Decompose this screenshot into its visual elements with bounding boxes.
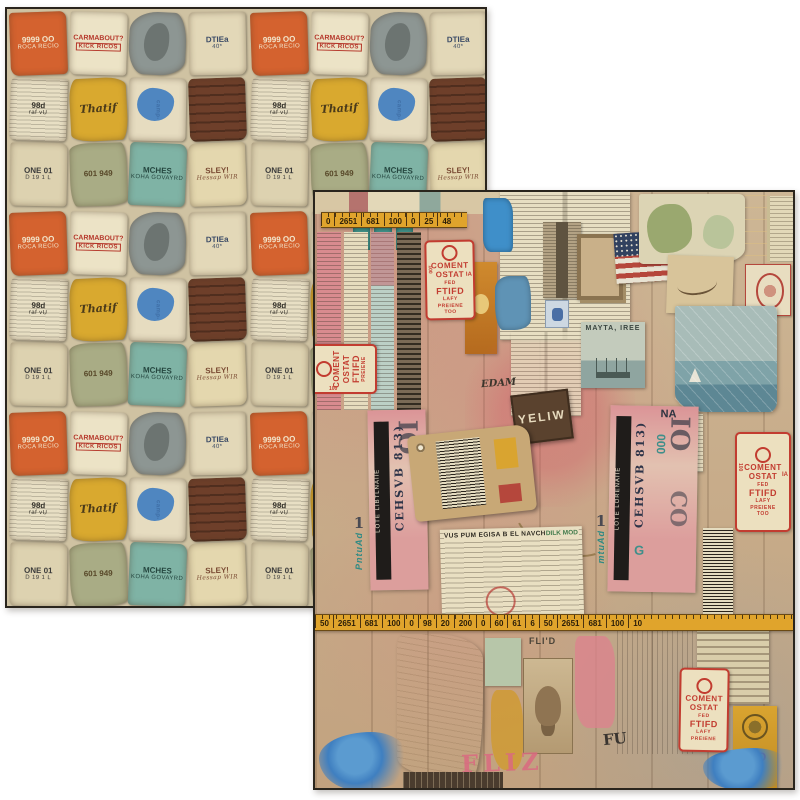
scrap-text: Thatif bbox=[320, 102, 358, 116]
scrap-text: Thatif bbox=[79, 502, 117, 516]
scrap-subtext: KOHA GOVAYRD bbox=[131, 575, 184, 584]
small-certificate-stamp bbox=[545, 300, 569, 328]
scrapbook-paper-product-photo: 9999 OOROCA RECIOCARMABOUT?KICK RICOSDTI… bbox=[0, 0, 800, 800]
top-edge-scraps bbox=[315, 192, 505, 214]
scrap-text: 98d bbox=[272, 301, 286, 310]
stamp-line: COMENT bbox=[744, 464, 782, 472]
tape-number: 0 bbox=[406, 213, 419, 226]
scrap-subtext: 40* bbox=[453, 44, 463, 51]
ticket-band-text: LOTE LORENAIIE bbox=[614, 417, 632, 581]
paper-scrap: 9999 OOROCA RECIO bbox=[9, 211, 68, 276]
scrap-subtext: KOHA GOVAYRD bbox=[131, 375, 184, 384]
stamp-side-number: 100 bbox=[737, 463, 743, 471]
paper-scrap: 9999 OOROCA RECIO bbox=[250, 11, 309, 76]
paper-scrap: SLEY!Hessap WIR bbox=[187, 542, 246, 607]
scrap-text: 98d bbox=[272, 101, 286, 110]
paper-sheet-front: MAYTA, IREE EDAM YELIW LOTE LIBTLNAIIE C… bbox=[313, 190, 795, 790]
tape-number: 48 bbox=[437, 213, 455, 226]
coment-ostat-stamp: 100 IA COMENT OSTAT FED FTIFD LAFY PREIE… bbox=[424, 240, 475, 321]
receipt-cluster: VUS PUM EGISA B EL NAVCHE DILK MOD bbox=[440, 526, 584, 624]
tape-number: 681 bbox=[360, 615, 382, 628]
ticket-letter: G bbox=[634, 543, 644, 558]
tape-number: 681 bbox=[361, 213, 383, 226]
ticket-band-text: LOTE LIBTLNAIIE bbox=[374, 421, 392, 580]
scrap-subtext: KOHA GOVAYRD bbox=[131, 175, 184, 184]
scrap-subtext: KICK RICOS bbox=[75, 42, 121, 52]
scrap-text: 98d bbox=[31, 101, 45, 110]
vintage-portrait-photo bbox=[523, 658, 573, 754]
scrap-subtext: KICK RICOS bbox=[75, 242, 121, 252]
stamp-line: OSTAT bbox=[343, 355, 351, 383]
portrait-face bbox=[535, 686, 561, 726]
torn-blue-paper bbox=[495, 276, 531, 330]
measuring-tape-bottom: 5026516811000982020006061650265168110010 bbox=[315, 614, 794, 631]
paper-scrap: Thatif bbox=[68, 476, 128, 542]
scrap-text: 98d bbox=[31, 501, 45, 510]
ticket-number: 1 bbox=[354, 514, 364, 532]
pink-ticket-right: NA 000 LOTE LORENAIIE CEHSVB 813) IO CO … bbox=[607, 405, 698, 593]
barcode-strip bbox=[436, 437, 487, 509]
paper-scrap: 98draf vU bbox=[9, 277, 68, 342]
scrap-subtext: camp- bbox=[154, 99, 161, 119]
tape-number: 10 bbox=[628, 615, 646, 628]
stamp-line: PREIENE bbox=[691, 737, 717, 743]
paper-scrap: 601 949 bbox=[69, 543, 127, 607]
stencil-word: FLI'D bbox=[529, 636, 556, 646]
scrap-text: 98d bbox=[272, 501, 286, 510]
tape-number: 0 bbox=[476, 615, 489, 628]
paper-scrap bbox=[127, 411, 187, 477]
scrap-subtext: D 19 1 L bbox=[25, 576, 51, 583]
scrap-subtext: D 19 1 L bbox=[266, 376, 292, 383]
tape-number: 25 bbox=[419, 213, 437, 226]
harbor-photo bbox=[675, 306, 777, 412]
tape-number: 2651 bbox=[557, 615, 584, 628]
tape-number: 6 bbox=[525, 615, 538, 628]
paper-scrap bbox=[187, 277, 246, 342]
scrap-subtext: ROCA RECIO bbox=[17, 44, 59, 52]
scrap-subtext: 40* bbox=[212, 44, 222, 51]
scrap-text: 601 949 bbox=[83, 570, 112, 580]
scrap-subtext: KICK RICOS bbox=[75, 442, 121, 452]
paper-scrap: 98draf vU bbox=[9, 477, 68, 542]
scrap-subtext: Hessap WIR bbox=[196, 575, 238, 583]
scrap-text: 601 949 bbox=[83, 370, 112, 380]
stamp-letters: IA bbox=[466, 272, 472, 278]
tape-number: 100 bbox=[384, 213, 406, 226]
paper-scrap: SLEY!Hessap WIR bbox=[187, 342, 246, 407]
paper-scrap: 98draf vU bbox=[250, 477, 309, 542]
ticket-serial: CEHSVB 813) bbox=[632, 421, 647, 529]
paper-scrap: camp- bbox=[128, 77, 186, 141]
measuring-tape-top: 0265168110002548 bbox=[321, 212, 467, 228]
scrap-subtext: raf vU bbox=[29, 310, 48, 317]
sailing-ship-illustration bbox=[596, 358, 630, 378]
paper-scrap: 98draf vU bbox=[9, 77, 68, 142]
yellow-patch bbox=[494, 437, 519, 469]
stamp-line: OSTAT bbox=[749, 473, 777, 481]
ticket-side-text: 1 PntuAd bbox=[349, 514, 369, 590]
scrap-subtext: D 19 1 L bbox=[266, 576, 292, 583]
pattern-tile: 9999 OOROCA RECIOCARMABOUT?KICK RICOSDTI… bbox=[248, 9, 487, 209]
paper-scrap bbox=[368, 11, 428, 77]
stamp-line: FTIFD bbox=[436, 287, 464, 297]
paper-scrap: DTIEa40* bbox=[188, 12, 246, 76]
paper-scrap: camp- bbox=[128, 277, 186, 341]
scrap-subtext: D 19 1 L bbox=[25, 176, 51, 183]
scrap-subtext: ROCA RECIO bbox=[17, 444, 59, 452]
scrap-subtext: ROCA RECIO bbox=[258, 244, 300, 252]
paper-scrap: 9999 OOROCA RECIO bbox=[9, 411, 68, 476]
tape-number: 2651 bbox=[334, 213, 361, 226]
scrap-subtext: camp- bbox=[154, 299, 161, 319]
pattern-tile: 9999 OOROCA RECIOCARMABOUT?KICK RICOSDTI… bbox=[7, 209, 248, 409]
paper-scrap: DTIEa40* bbox=[429, 12, 487, 76]
paper-scrap: Thatif bbox=[68, 276, 128, 342]
scrap-text: Thatif bbox=[79, 102, 117, 116]
tape-number: 0 bbox=[404, 615, 417, 628]
stamp-line: LAFY bbox=[755, 499, 770, 504]
coment-ostat-stamp: 100 COMENT OSTAT FTIFD PREIENE bbox=[313, 344, 377, 394]
tape-number: 681 bbox=[583, 615, 605, 628]
ticket-side-word: PntuAd bbox=[354, 532, 364, 570]
stamp-line: OSTAT bbox=[436, 271, 465, 280]
tape-number: 50 bbox=[539, 615, 557, 628]
tape-number: 2651 bbox=[333, 615, 360, 628]
scrap-text: DTIEa bbox=[205, 35, 228, 44]
scrap-subtext: raf vU bbox=[270, 110, 289, 117]
paper-scrap: ONE 01D 19 1 L bbox=[250, 143, 308, 207]
paper-scrap bbox=[428, 77, 487, 142]
scrap-subtext: raf vU bbox=[270, 310, 289, 317]
paper-scrap bbox=[187, 477, 246, 542]
paper-scrap: 601 949 bbox=[69, 143, 127, 207]
painted-letters: FU bbox=[602, 729, 627, 749]
paper-scrap: CARMABOUT?KICK RICOS bbox=[310, 11, 368, 75]
scrap-subtext: KICK RICOS bbox=[316, 42, 362, 52]
scrap-text: DTIEa bbox=[205, 235, 228, 244]
red-ring-stamp bbox=[485, 586, 516, 617]
blue-paint-splash bbox=[319, 732, 414, 790]
blue-paint-splash bbox=[703, 748, 795, 790]
paper-scrap: CARMABOUT?KICK RICOS bbox=[69, 411, 127, 475]
stamp-line: TOO bbox=[757, 512, 769, 517]
tape-number: 60 bbox=[490, 615, 508, 628]
pattern-tile: 9999 OOROCA RECIOCARMABOUT?KICK RICOSDTI… bbox=[7, 409, 248, 608]
stamp-line: FTIFD bbox=[352, 355, 361, 383]
dark-ticket-band bbox=[403, 772, 503, 790]
tape-number: 20 bbox=[436, 615, 454, 628]
paper-scrap: 98draf vU bbox=[250, 277, 309, 342]
green-note-scrap bbox=[485, 638, 521, 686]
stamp-line: COMENT bbox=[333, 350, 341, 388]
stamp-line: OSTAT bbox=[690, 704, 719, 713]
paper-scrap: 98draf vU bbox=[250, 77, 309, 142]
scrap-subtext: D 19 1 L bbox=[25, 376, 51, 383]
stamp-letters: IA bbox=[782, 472, 788, 478]
paper-scrap: MCHESKOHA GOVAYRD bbox=[128, 542, 187, 607]
paper-scrap: MCHESKOHA GOVAYRD bbox=[128, 142, 187, 207]
paper-scrap: Thatif bbox=[309, 76, 369, 142]
ship-card-caption: MAYTA, IREE bbox=[586, 325, 641, 332]
pattern-tile: 9999 OOROCA RECIOCARMABOUT?KICK RICOSDTI… bbox=[7, 9, 248, 209]
clock-tower-engraving bbox=[543, 222, 581, 298]
paper-scrap: ONE 01D 19 1 L bbox=[9, 143, 67, 207]
tape-number: 98 bbox=[418, 615, 436, 628]
coment-ostat-stamp: 100 IA COMENT OSTAT FED FTIFD LAFY PREIE… bbox=[735, 432, 791, 532]
paper-scrap: 9999 OOROCA RECIO bbox=[250, 411, 309, 476]
stamp-emblem-icon bbox=[755, 447, 771, 463]
scrap-subtext: ROCA RECIO bbox=[17, 244, 59, 252]
scrap-text: Thatif bbox=[79, 302, 117, 316]
scrap-subtext: raf vU bbox=[270, 510, 289, 517]
scrap-subtext: raf vU bbox=[29, 110, 48, 117]
paper-scrap bbox=[187, 77, 246, 142]
scrap-text: DTIEa bbox=[205, 435, 228, 444]
scrap-subtext: Hessap WIR bbox=[437, 175, 479, 183]
paper-scrap bbox=[127, 11, 187, 77]
paper-scrap: SLEY!Hessap WIR bbox=[187, 142, 246, 207]
open-book-pages bbox=[767, 196, 795, 262]
scrap-subtext: ROCA RECIO bbox=[258, 444, 300, 452]
stamp-line: TOO bbox=[444, 310, 456, 315]
tape-number: 200 bbox=[454, 615, 476, 628]
paper-scrap: ONE 01D 19 1 L bbox=[250, 343, 308, 407]
stamp-side-number: 100 bbox=[427, 265, 433, 273]
scrap-text: 601 949 bbox=[324, 170, 353, 180]
stamp-side-number: 100 bbox=[329, 386, 337, 392]
stamp-line: PREIENE bbox=[362, 356, 367, 381]
stamp-emblem-icon bbox=[696, 678, 712, 694]
paper-scrap: 9999 OOROCA RECIO bbox=[250, 211, 309, 276]
scrap-subtext: 40* bbox=[212, 244, 222, 251]
paper-scrap: ONE 01D 19 1 L bbox=[250, 543, 308, 607]
paper-scrap: CARMABOUT?KICK RICOS bbox=[69, 11, 127, 75]
tape-number: 61 bbox=[507, 615, 525, 628]
tape-number: 50 bbox=[315, 615, 333, 628]
map-fragment bbox=[639, 194, 745, 264]
paper-scrap: CARMABOUT?KICK RICOS bbox=[69, 211, 127, 275]
scrap-subtext: camp- bbox=[395, 99, 402, 119]
scrap-subtext: KOHA GOVAYRD bbox=[372, 175, 425, 184]
barcode-strip bbox=[703, 528, 733, 624]
scrap-subtext: D 19 1 L bbox=[266, 176, 292, 183]
book-spine bbox=[745, 194, 767, 256]
scrap-subtext: Hessap WIR bbox=[196, 375, 238, 383]
scrap-subtext: camp- bbox=[154, 499, 161, 519]
paper-scrap: DTIEa40* bbox=[188, 212, 246, 276]
paper-scrap: camp- bbox=[128, 477, 186, 541]
scrap-subtext: Hessap WIR bbox=[196, 175, 238, 183]
ticket-numeral: IO bbox=[664, 416, 695, 451]
scrap-text: 98d bbox=[31, 301, 45, 310]
scrap-subtext: ROCA RECIO bbox=[258, 44, 300, 52]
scrap-subtext: 40* bbox=[212, 444, 222, 451]
scrap-text: 601 949 bbox=[83, 170, 112, 180]
tape-number: 100 bbox=[606, 615, 628, 628]
paper-scrap: Thatif bbox=[68, 76, 128, 142]
scrap-text: DTIEa bbox=[446, 35, 469, 44]
tape-number: 0 bbox=[321, 213, 334, 226]
coment-ostat-stamp: COMENT OSTAT FED FTIFD LAFY PREIENE bbox=[678, 668, 729, 753]
paper-scrap: DTIEa40* bbox=[188, 412, 246, 476]
scrap-subtext: raf vU bbox=[29, 510, 48, 517]
paper-scrap: 9999 OOROCA RECIO bbox=[9, 11, 68, 76]
paper-scrap: 601 949 bbox=[69, 343, 127, 407]
ticket-numeral: CO bbox=[665, 490, 692, 527]
blue-paper-scrap bbox=[483, 198, 513, 252]
stamp-line: FTIFD bbox=[690, 720, 718, 730]
stamp-emblem-icon bbox=[441, 245, 457, 261]
paper-scrap: camp- bbox=[369, 77, 427, 141]
stamp-emblem-icon bbox=[316, 361, 332, 377]
paper-scrap bbox=[127, 211, 187, 277]
tape-number: 100 bbox=[382, 615, 404, 628]
paper-scrap: MCHESKOHA GOVAYRD bbox=[128, 342, 187, 407]
stamp-line: FTIFD bbox=[749, 489, 777, 498]
paper-scrap: ONE 01D 19 1 L bbox=[9, 343, 67, 407]
paper-scrap: ONE 01D 19 1 L bbox=[9, 543, 67, 607]
ship-photo-card: MAYTA, IREE bbox=[581, 322, 645, 388]
receipt-green-text: DILK MOD bbox=[545, 529, 579, 537]
pink-paper-panel bbox=[575, 636, 615, 728]
